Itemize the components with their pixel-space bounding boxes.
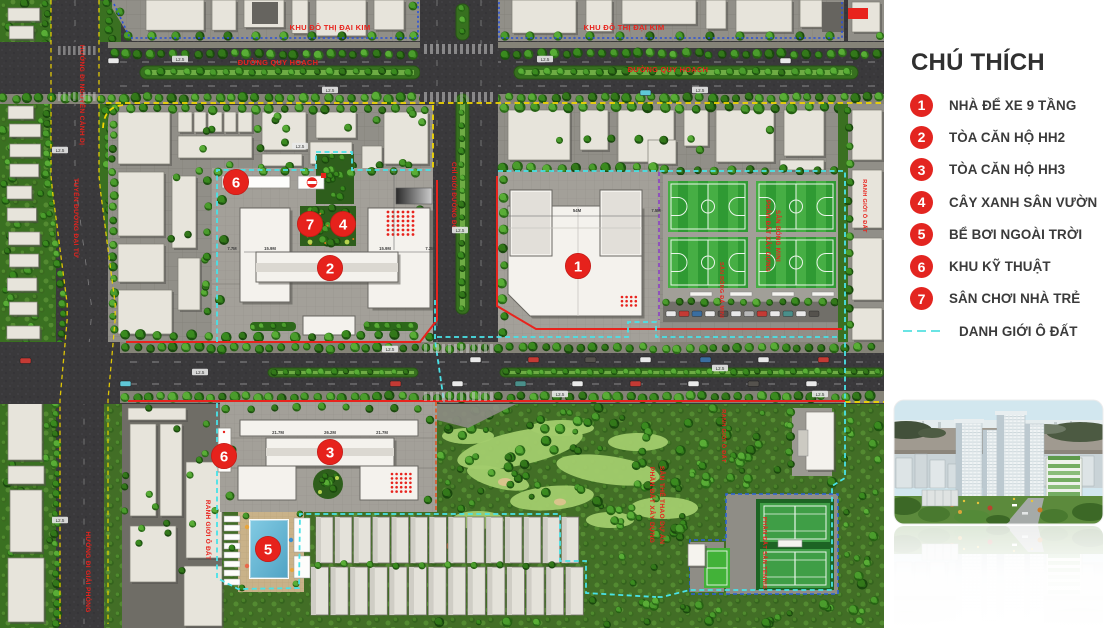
svg-text:KHU ĐÔ THỊ ĐẠI KIM: KHU ĐÔ THỊ ĐẠI KIM [584,23,665,32]
svg-text:L2.5: L2.5 [556,392,565,397]
svg-text:4: 4 [339,216,348,233]
svg-text:PHẦN ĐẤT SÂN TENNIS: PHẦN ĐẤT SÂN TENNIS [761,517,768,589]
svg-text:PHẦN ĐẤT XÂY DỰNG: PHẦN ĐẤT XÂY DỰNG [764,200,771,272]
svg-text:HƯỚNG ĐI GIẢI PHÓNG: HƯỚNG ĐI GIẢI PHÓNG [84,531,93,612]
svg-text:L2.5: L2.5 [456,228,465,233]
svg-text:3: 3 [326,444,334,461]
svg-text:6: 6 [232,174,240,191]
svg-text:L2.5: L2.5 [386,347,395,352]
svg-text:21.7M: 21.7M [272,430,284,435]
svg-text:2: 2 [326,260,334,277]
svg-text:7: 7 [306,216,314,233]
svg-text:5: 5 [264,541,272,558]
svg-text:54M: 54M [573,208,582,213]
svg-text:RANH GIỚI Ô ĐẤT: RANH GIỚI Ô ĐẤT [720,409,728,463]
svg-text:CHỈ GIỚI ĐƯỜNG ĐỎ: CHỈ GIỚI ĐƯỜNG ĐỎ [450,162,458,230]
svg-text:L2.5: L2.5 [56,518,65,523]
svg-text:RANH GIỚI Ô ĐẤT: RANH GIỚI Ô ĐẤT [861,179,869,233]
svg-text:L2.5: L2.5 [176,57,185,62]
svg-text:SÂN BÓNG ĐÁ MINI: SÂN BÓNG ĐÁ MINI [718,262,726,318]
svg-text:ĐƯỜNG QUY HOẠCH: ĐƯỜNG QUY HOẠCH [238,58,318,67]
svg-text:7.5M: 7.5M [651,208,661,213]
svg-text:L2.5: L2.5 [296,144,305,149]
svg-text:SÂN BÓNG MINI: SÂN BÓNG MINI [774,210,782,262]
svg-text:SÂN THỂ THAO DỰ ÁN: SÂN THỂ THAO DỰ ÁN [658,466,667,544]
svg-text:26.2M: 26.2M [324,430,336,435]
svg-text:15.9M: 15.9M [264,246,276,251]
svg-text:L2.5: L2.5 [56,148,65,153]
svg-text:L2.5: L2.5 [696,88,705,93]
svg-text:7.7M: 7.7M [227,246,237,251]
svg-text:KHU ĐÔ THỊ ĐẠI KIM: KHU ĐÔ THỊ ĐẠI KIM [290,23,371,32]
svg-text:L2.5: L2.5 [196,370,205,375]
svg-text:L2.5: L2.5 [716,366,725,371]
svg-text:21.7M: 21.7M [376,430,388,435]
svg-text:1: 1 [574,258,582,275]
svg-text:15.9M: 15.9M [379,246,391,251]
svg-text:L2.5: L2.5 [816,392,825,397]
svg-text:L2.5: L2.5 [326,88,335,93]
svg-text:L2.5: L2.5 [541,57,550,62]
svg-text:ĐƯỜNG QUY HOẠCH: ĐƯỜNG QUY HOẠCH [628,65,708,74]
svg-text:7.2M: 7.2M [425,246,435,251]
svg-text:6: 6 [220,448,228,465]
